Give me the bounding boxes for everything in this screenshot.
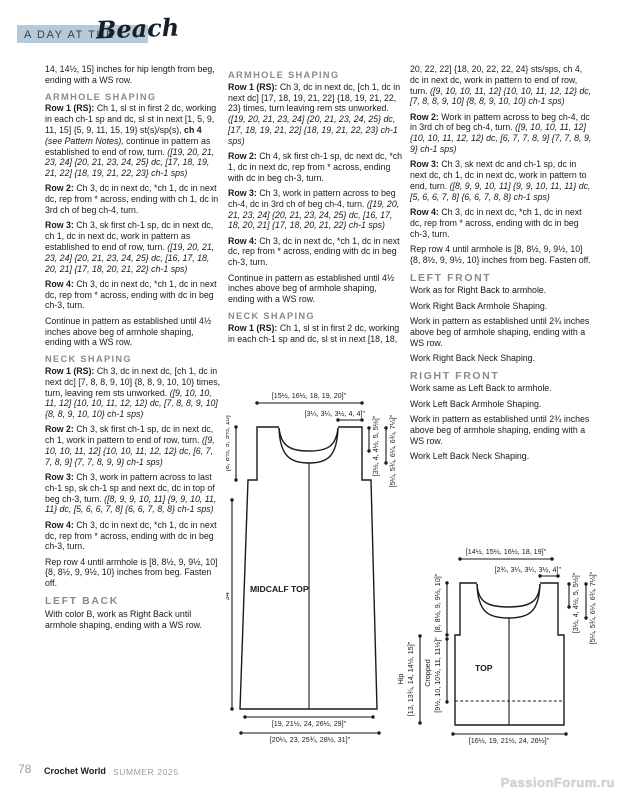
- pattern-paragraph: Continue in pattern as established until…: [45, 316, 221, 348]
- page-number: 78: [18, 762, 31, 776]
- section-heading: ARMHOLE SHAPING: [45, 92, 221, 103]
- pattern-paragraph: Row 4: Ch 3, dc in next dc, *ch 1, dc in…: [228, 236, 404, 268]
- pattern-paragraph: Row 1 (RS): Ch 1, sl st in first 2 dc, w…: [45, 103, 221, 179]
- d1-hem-upper-label: [19, 21½, 24, 26½, 29]": [272, 719, 347, 728]
- pattern-paragraph: Continue in pattern as established until…: [228, 273, 404, 305]
- pattern-paragraph: Work Left Back Neck Shaping.: [410, 451, 593, 462]
- pattern-paragraph: Work Right Back Armhole Shaping.: [410, 301, 593, 312]
- d2-hem-width-label: [16½, 19, 21½, 24, 26½]": [469, 736, 550, 745]
- pattern-paragraph: 20, 22, 22] {18, 20, 22, 22, 24} sts/sps…: [410, 64, 593, 107]
- pattern-paragraph: Rep row 4 until armhole is [8, 8½, 9, 9½…: [410, 244, 593, 266]
- pattern-column-3: 20, 22, 22] {18, 20, 22, 22, 24} sts/sps…: [410, 64, 593, 466]
- midcalf-top-schematic: [15½, 16½, 18, 19, 20]" [3¼, 3¼, 3½, 4, …: [226, 390, 404, 758]
- watermark-text: PassionForum.ru: [501, 775, 615, 790]
- section-heading: LEFT FRONT: [410, 273, 593, 284]
- pattern-column-1: 14, 14½, 15] inches for hip length from …: [45, 64, 221, 635]
- pattern-column-2: ARMHOLE SHAPINGRow 1 (RS): Ch 3, dc in n…: [228, 64, 404, 349]
- pattern-paragraph: Work same as Left Back to armhole.: [410, 383, 593, 394]
- pattern-paragraph: Row 2: Ch 3, sk first ch-1 sp, dc in nex…: [45, 424, 221, 467]
- pattern-paragraph: Row 3: Ch 3, sk first ch-1 sp, dc in nex…: [45, 220, 221, 274]
- pattern-paragraph: Rep row 4 until armhole is [8, 8½, 9, 9½…: [45, 557, 221, 589]
- top-back-neck-curve: [477, 584, 540, 607]
- d1-top-width-label: [15½, 16½, 18, 19, 20]": [272, 391, 347, 400]
- d2-hip-word: Hip: [396, 674, 405, 685]
- midcalf-back-neck-curve: [279, 428, 338, 451]
- magazine-title: Crochet World: [44, 766, 106, 776]
- d2-back-neck-depth-label: [3½, 4, 4½, 5, 5½]": [571, 572, 580, 633]
- section-heading: ARMHOLE SHAPING: [228, 70, 404, 81]
- pattern-paragraph: Row 1 (RS): Ch 3, dc in next dc, [ch 1, …: [228, 82, 404, 147]
- pattern-paragraph: Row 3: Ch 3, sk next dc and ch-1 sp, dc …: [410, 159, 593, 202]
- pattern-paragraph: Row 3: Ch 3, work in pattern across to b…: [228, 188, 404, 231]
- pattern-paragraph: Row 2: Work in pattern across to beg ch-…: [410, 112, 593, 155]
- section-heading: NECK SHAPING: [45, 354, 221, 365]
- d1-neck-width-label: [3¼, 3¼, 3½, 4, 4]": [305, 409, 366, 418]
- pattern-paragraph: Row 1 (RS): Ch 1, sl st in first 2 dc, w…: [228, 323, 404, 345]
- d1-armhole-depth-label: [8, 8½, 9, 9½, 10]": [226, 412, 231, 471]
- pattern-paragraph: Work Left Back Armhole Shaping.: [410, 399, 593, 410]
- top-front-neck-curve: [477, 584, 540, 618]
- d1-hem-lower-label: [20¼, 23, 25¾, 28½, 31]": [270, 735, 351, 744]
- d2-top-width-label: [14½, 15½, 16½, 18, 19]": [466, 547, 547, 556]
- d2-hip-length-label: [13, 13¾, 14, 14½, 15]": [406, 641, 415, 716]
- d2-front-neck-depth-label: [5¼, 5¾, 6¼, 6¾, 7¼]": [588, 571, 597, 644]
- pattern-paragraph: Row 4: Ch 3, dc in next dc, *ch 1, dc in…: [45, 279, 221, 311]
- section-heading: LEFT BACK: [45, 596, 221, 607]
- d2-neck-width-label: [2¾, 3¼, 3¼, 3½, 4]": [495, 565, 562, 574]
- pattern-paragraph: Row 2: Ch 3, dc in next dc, *ch 1, dc in…: [45, 183, 221, 215]
- d2-cropped-word: Cropped: [423, 659, 432, 687]
- d2-cropped-length-label: [9½, 10, 10½, 11, 11½]": [433, 637, 442, 713]
- pattern-paragraph: Work as for Right Back to armhole.: [410, 285, 593, 296]
- pattern-paragraph: Row 3: Ch 3, work in pattern across to l…: [45, 472, 221, 515]
- pattern-paragraph: Row 1 (RS): Ch 3, dc in next dc, [ch 1, …: [45, 366, 221, 420]
- pattern-paragraph: Work in pattern as established until 2¾ …: [410, 316, 593, 348]
- pattern-paragraph: Row 2: Ch 4, sk first ch-1 sp, dc next d…: [228, 151, 404, 183]
- midcalf-front-neck-curve: [279, 428, 338, 463]
- d2-armhole-depth-label: [8, 8½, 9, 9½, 10]": [433, 573, 442, 632]
- issue-label: SUMMER 2025: [113, 767, 179, 777]
- pattern-paragraph: 14, 14½, 15] inches for hip length from …: [45, 64, 221, 86]
- tagline-script-word: Beach: [96, 13, 180, 45]
- pattern-paragraph: Work Right Back Neck Shaping.: [410, 353, 593, 364]
- magazine-page: A DAY AT THE Beach 14, 14½, 15] inches f…: [0, 0, 633, 800]
- d2-garment-name: TOP: [475, 663, 493, 673]
- section-heading: NECK SHAPING: [228, 311, 404, 322]
- d1-total-length-label: 34": [226, 589, 231, 600]
- pattern-paragraph: With color B, work as Right Back until a…: [45, 609, 221, 631]
- d1-garment-name: MIDCALF TOP: [250, 584, 309, 594]
- d1-back-neck-depth-label: [3½, 4, 4½, 5, 5½]": [371, 415, 380, 476]
- section-heading: RIGHT FRONT: [410, 371, 593, 382]
- top-schematic: [14½, 15½, 16½, 18, 19]" [2¾, 3¼, 3¼, 3½…: [396, 545, 633, 773]
- pattern-paragraph: Row 4: Ch 3, dc in next dc, *ch 1, dc in…: [45, 520, 221, 552]
- pattern-paragraph: Work in pattern as established until 2¾ …: [410, 414, 593, 446]
- pattern-paragraph: Row 4: Ch 3, dc in next dc, *ch 1, dc in…: [410, 207, 593, 239]
- d1-front-neck-depth-label: [5¼, 5¾, 6¼, 6¾, 7¼]": [388, 414, 397, 487]
